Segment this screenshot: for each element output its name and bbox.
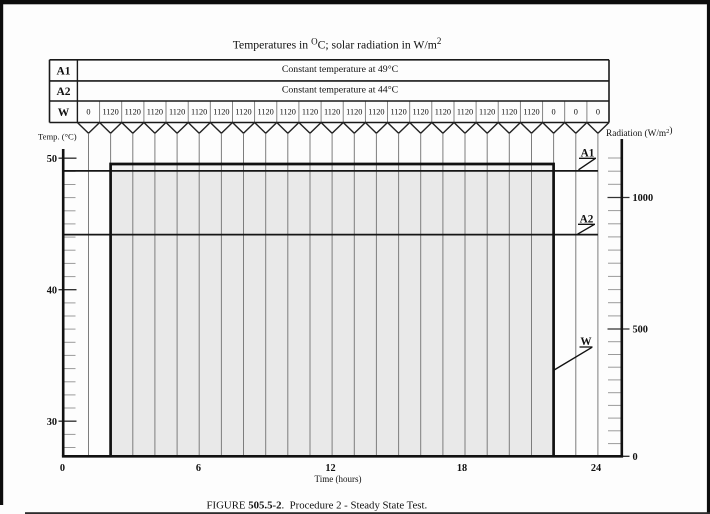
svg-text:1120: 1120 — [302, 108, 318, 117]
svg-text:1120: 1120 — [435, 108, 451, 117]
svg-text:50: 50 — [47, 154, 57, 165]
svg-text:1120: 1120 — [368, 108, 384, 117]
svg-text:1120: 1120 — [346, 108, 362, 117]
svg-text:1120: 1120 — [258, 108, 274, 117]
svg-text:1000: 1000 — [633, 193, 654, 204]
svg-text:1120: 1120 — [125, 108, 141, 117]
svg-text:0: 0 — [596, 108, 600, 117]
svg-text:1120: 1120 — [501, 108, 517, 117]
svg-text:W: W — [58, 107, 70, 119]
svg-text:30: 30 — [47, 417, 57, 428]
svg-text:A1: A1 — [56, 66, 70, 78]
svg-text:0: 0 — [574, 108, 578, 117]
svg-text:0: 0 — [552, 108, 556, 117]
svg-text:1120: 1120 — [479, 108, 495, 117]
svg-text:18: 18 — [457, 463, 467, 474]
svg-text:Time (hours): Time (hours) — [315, 474, 362, 484]
svg-text:40: 40 — [47, 285, 57, 296]
svg-text:1120: 1120 — [191, 108, 207, 117]
svg-text:24: 24 — [591, 463, 601, 474]
svg-text:1120: 1120 — [147, 108, 163, 117]
svg-text:0: 0 — [60, 463, 65, 474]
svg-text:6: 6 — [196, 463, 201, 474]
svg-text:0: 0 — [86, 108, 90, 117]
svg-text:1120: 1120 — [169, 108, 185, 117]
svg-text:Constant temperature at 49°C: Constant temperature at 49°C — [282, 64, 398, 75]
svg-text:FIGURE 505.5-2. Procedure 2 -: FIGURE 505.5-2. Procedure 2 - Steady Sta… — [207, 499, 428, 511]
svg-text:12: 12 — [325, 463, 335, 474]
svg-text:1120: 1120 — [390, 108, 406, 117]
svg-text:1120: 1120 — [457, 108, 473, 117]
svg-text:1120: 1120 — [235, 108, 251, 117]
svg-text:1120: 1120 — [280, 108, 296, 117]
svg-text:A2: A2 — [56, 86, 70, 98]
svg-text:Temperatures in OC; solar radi: Temperatures in OC; solar radiation in W… — [233, 36, 442, 52]
svg-text:1120: 1120 — [324, 108, 340, 117]
svg-text:Temp. (°C): Temp. (°C) — [38, 132, 77, 142]
svg-text:1120: 1120 — [413, 108, 429, 117]
svg-text:Constant temperature at 44°C: Constant temperature at 44°C — [282, 84, 398, 95]
svg-text:1120: 1120 — [523, 108, 539, 117]
svg-text:500: 500 — [633, 325, 648, 336]
svg-text:0: 0 — [633, 452, 638, 463]
svg-text:1120: 1120 — [102, 108, 118, 117]
svg-text:1120: 1120 — [213, 108, 229, 117]
